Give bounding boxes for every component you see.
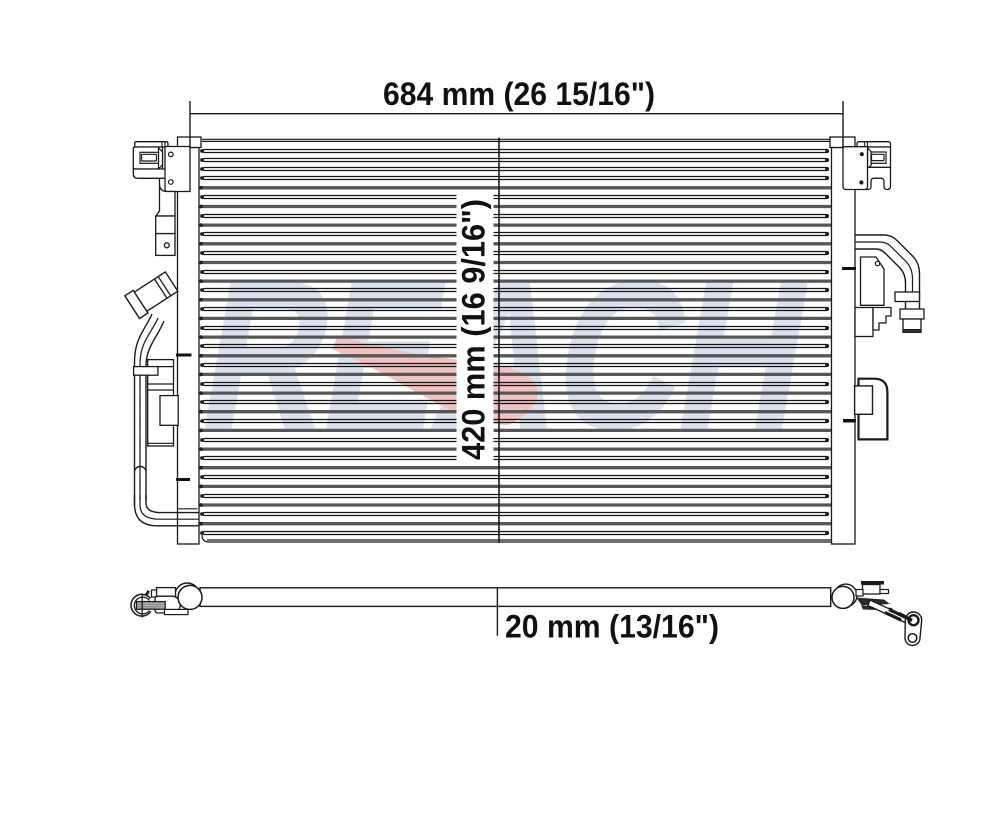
svg-text:684 mm (26 15/16"): 684 mm (26 15/16")	[383, 76, 655, 112]
svg-text:420 mm (16 9/16"): 420 mm (16 9/16")	[456, 199, 492, 460]
svg-text:20 mm (13/16"): 20 mm (13/16")	[505, 609, 719, 645]
